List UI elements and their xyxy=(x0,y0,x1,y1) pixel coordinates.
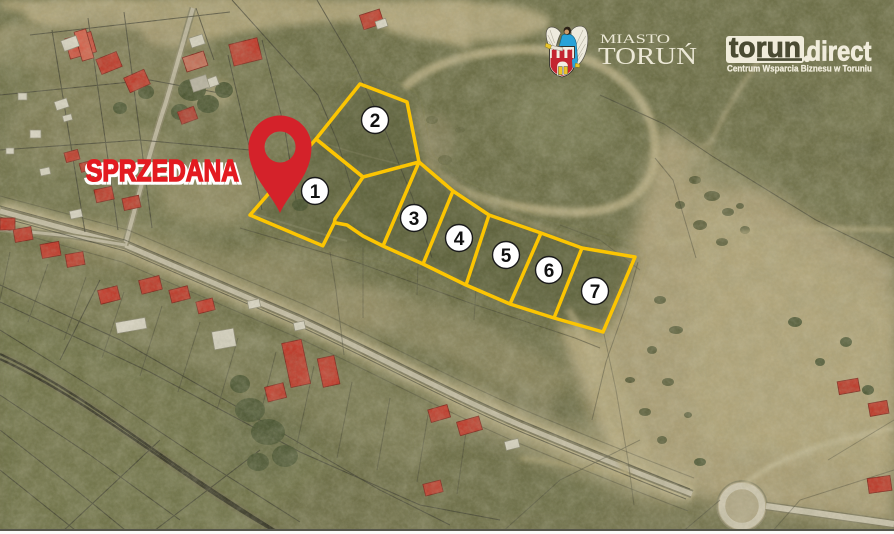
svg-text:6: 6 xyxy=(544,261,555,282)
svg-text:SPRZEDANA: SPRZEDANA xyxy=(86,153,239,188)
svg-text:Centrum Wsparcia Biznesu w Tor: Centrum Wsparcia Biznesu w Toruniu xyxy=(727,64,872,75)
svg-text:4: 4 xyxy=(454,229,465,250)
svg-text:7: 7 xyxy=(590,282,601,303)
svg-text:direct: direct xyxy=(807,36,872,67)
svg-text:TORUŃ: TORUŃ xyxy=(598,44,697,70)
svg-text:2: 2 xyxy=(370,111,381,132)
svg-text:5: 5 xyxy=(501,246,512,267)
svg-text:1: 1 xyxy=(310,182,321,203)
svg-text:3: 3 xyxy=(409,209,420,230)
